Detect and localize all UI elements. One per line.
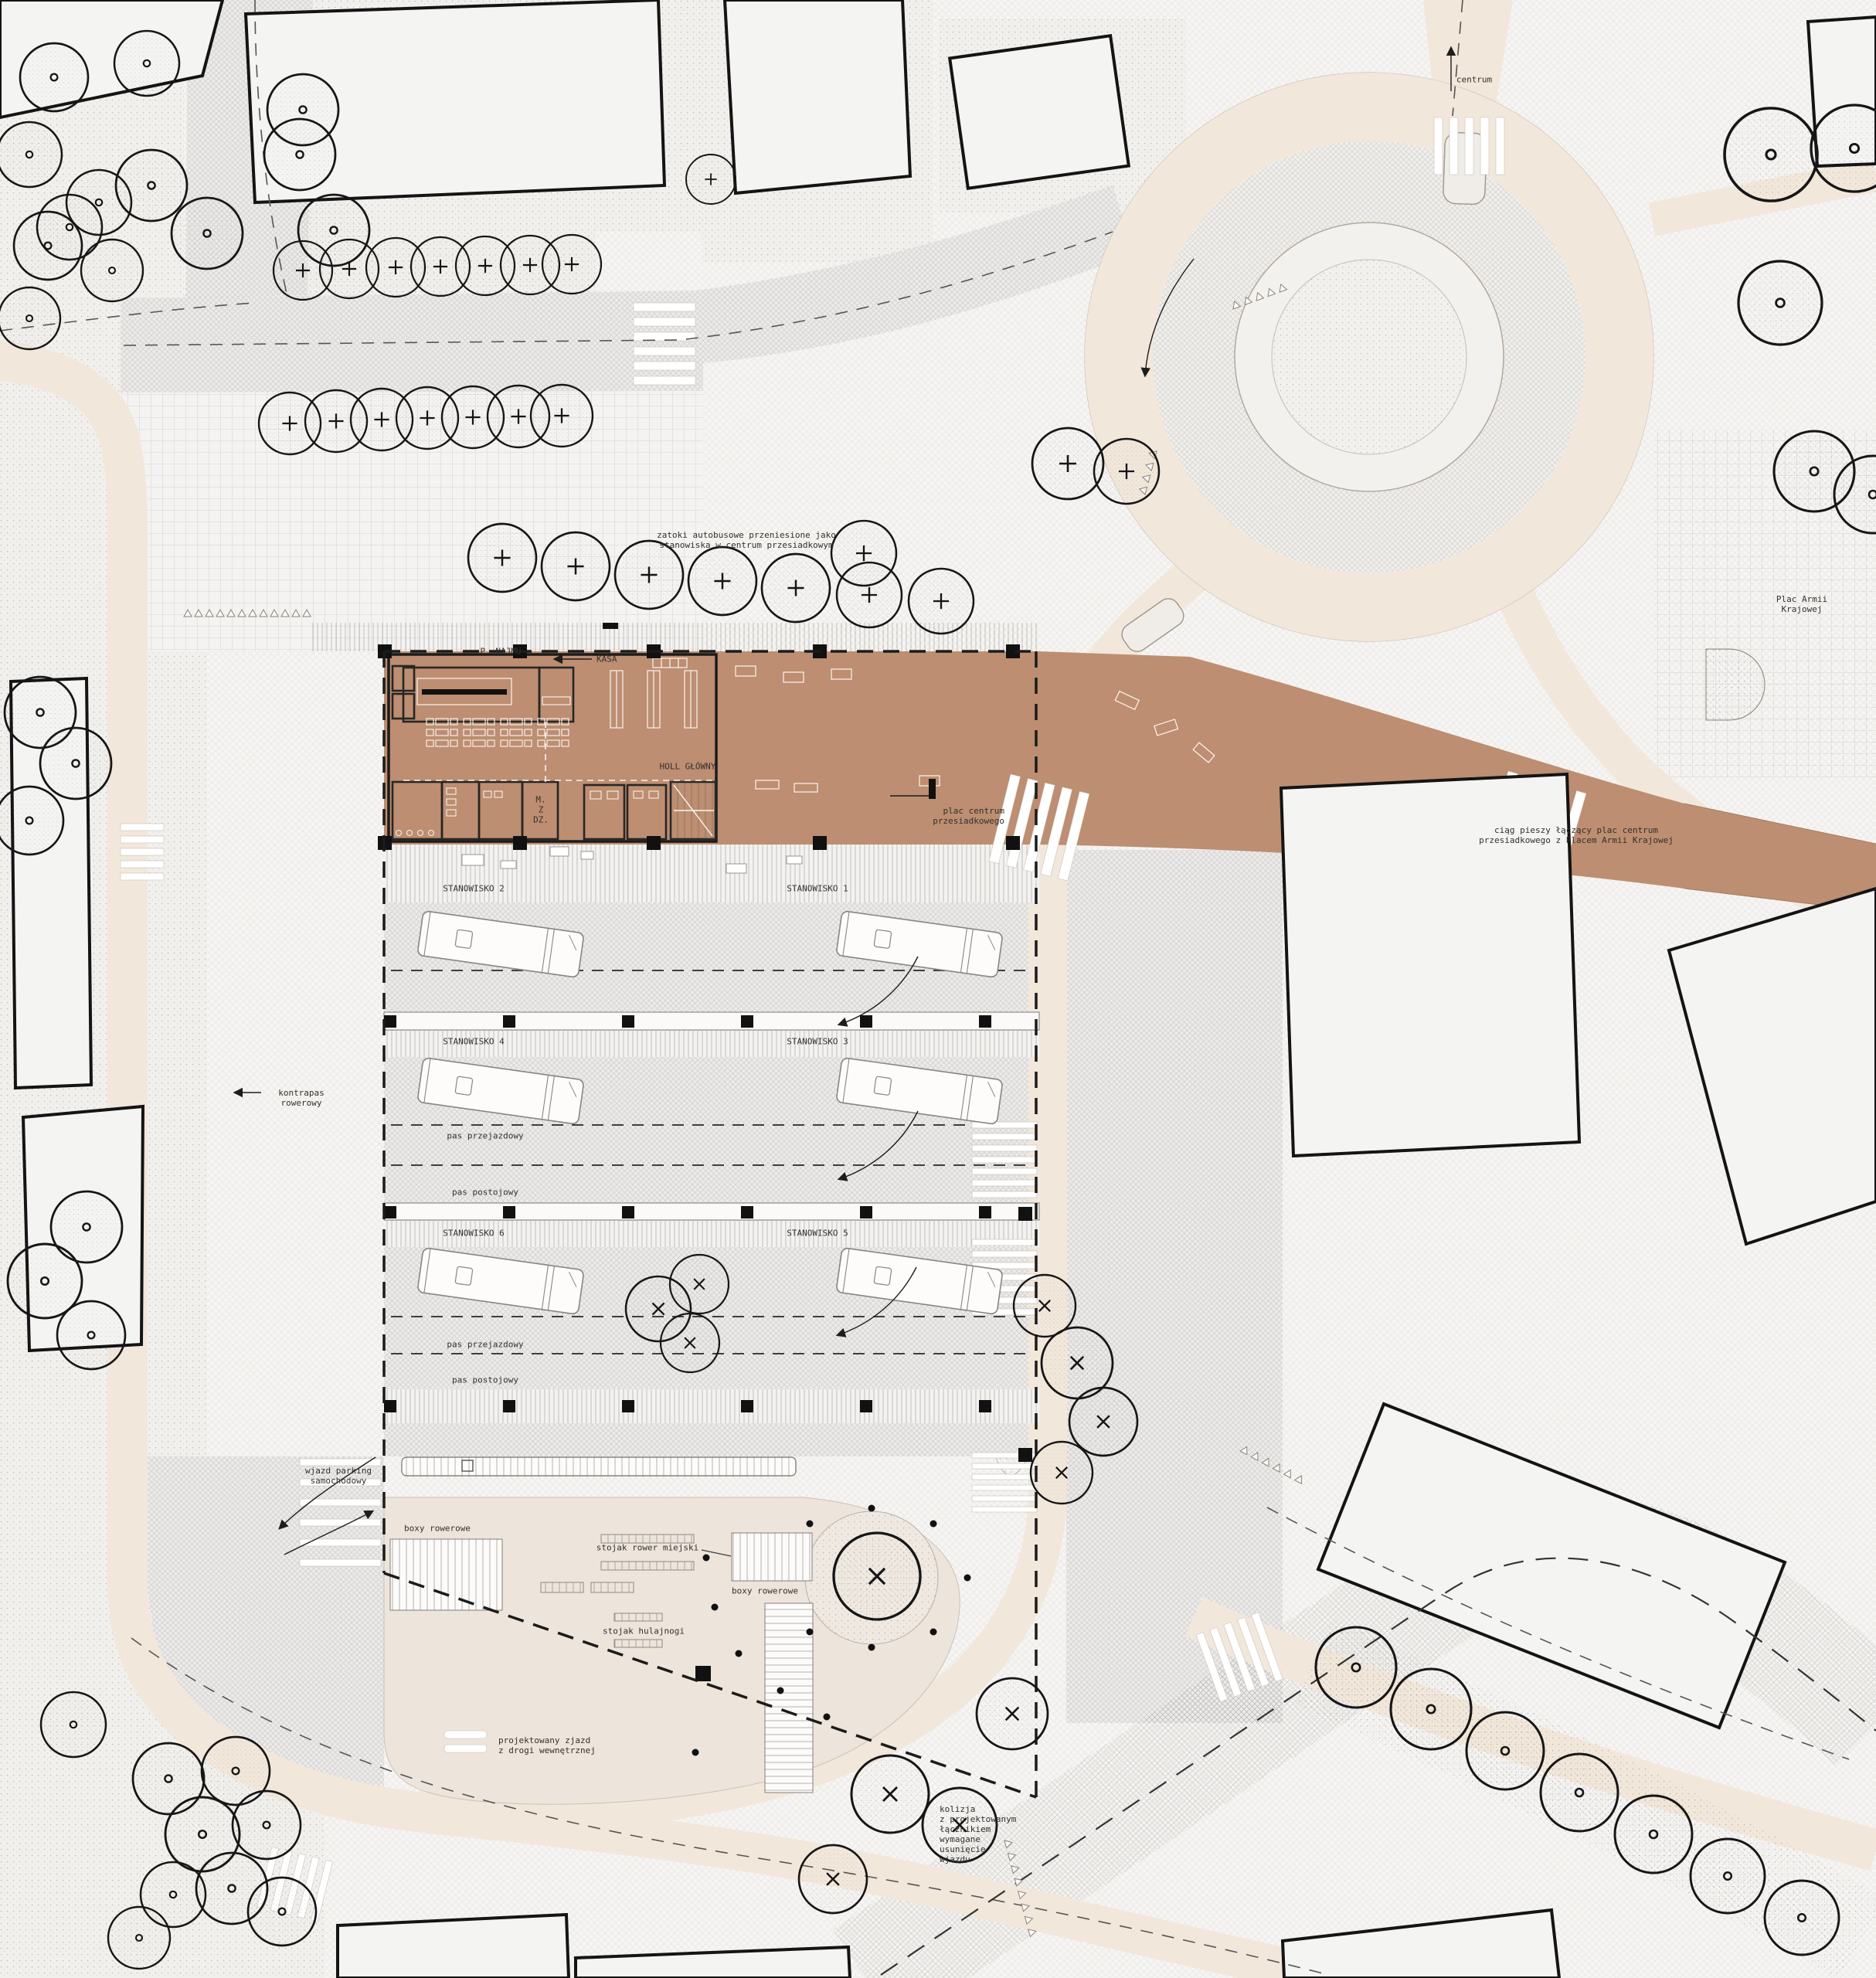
- label-pas-przejazdowy-2: pas przejazdowy: [447, 1340, 523, 1350]
- label-pas-postojowy-2: pas postojowy: [452, 1375, 518, 1385]
- label-projektowany-zjazd: projektowany zjazd z drogi wewnętrznej: [498, 1735, 596, 1755]
- label-m-z-dz: M. Z DZ.: [533, 795, 549, 825]
- label-kolizja: kolizja z projektowanym łącznikiem wymag…: [940, 1804, 1016, 1864]
- label-plac-centrum: plac centrum przesiadkowego: [933, 806, 1004, 826]
- label-pas-postojowy-1: pas postojowy: [452, 1188, 518, 1198]
- label-ciag-pieszy: ciąg pieszy łączący plac centrum przesia…: [1479, 825, 1674, 845]
- label-stojak-hulajnogi: stojak hulajnogi: [603, 1626, 685, 1636]
- label-stanowisko-5: STANOWISKO 5: [787, 1229, 848, 1239]
- label-stanowisko-4: STANOWISKO 4: [443, 1037, 504, 1047]
- label-p-najmu: P. NAJMU: [481, 647, 522, 657]
- label-kasa: KASA: [596, 654, 617, 664]
- label-stanowisko-6: STANOWISKO 6: [443, 1229, 504, 1239]
- label-zatoki-autobusowe: zatoki autobusowe przeniesione jako stan…: [657, 530, 836, 550]
- label-stanowisko-2: STANOWISKO 2: [443, 884, 504, 894]
- label-boxy-rowerowe-1: boxy rowerowe: [404, 1524, 471, 1534]
- label-pas-przejazdowy-1: pas przejazdowy: [447, 1131, 523, 1141]
- label-stanowisko-1: STANOWISKO 1: [787, 884, 848, 894]
- label-kontrapas-rowerowy: kontrapas rowerowy: [278, 1088, 325, 1108]
- label-centrum: centrum: [1456, 75, 1492, 85]
- label-wjazd-parking: wjazd parking samochodowy: [305, 1466, 372, 1486]
- label-boxy-rowerowe-2: boxy rowerowe: [732, 1586, 798, 1596]
- label-plac-armii-krajowej: Plac Armii Krajowej: [1776, 594, 1827, 614]
- label-holl-glowny: HOLL GŁÓWNY: [660, 762, 716, 772]
- site-plan-drawing: [0, 0, 1876, 1978]
- site-plan-page: centrum zatoki autobusowe przeniesione j…: [0, 0, 1876, 1978]
- label-stojak-rower-miejski: stojak rower miejski: [596, 1543, 698, 1553]
- label-stanowisko-3: STANOWISKO 3: [787, 1037, 848, 1047]
